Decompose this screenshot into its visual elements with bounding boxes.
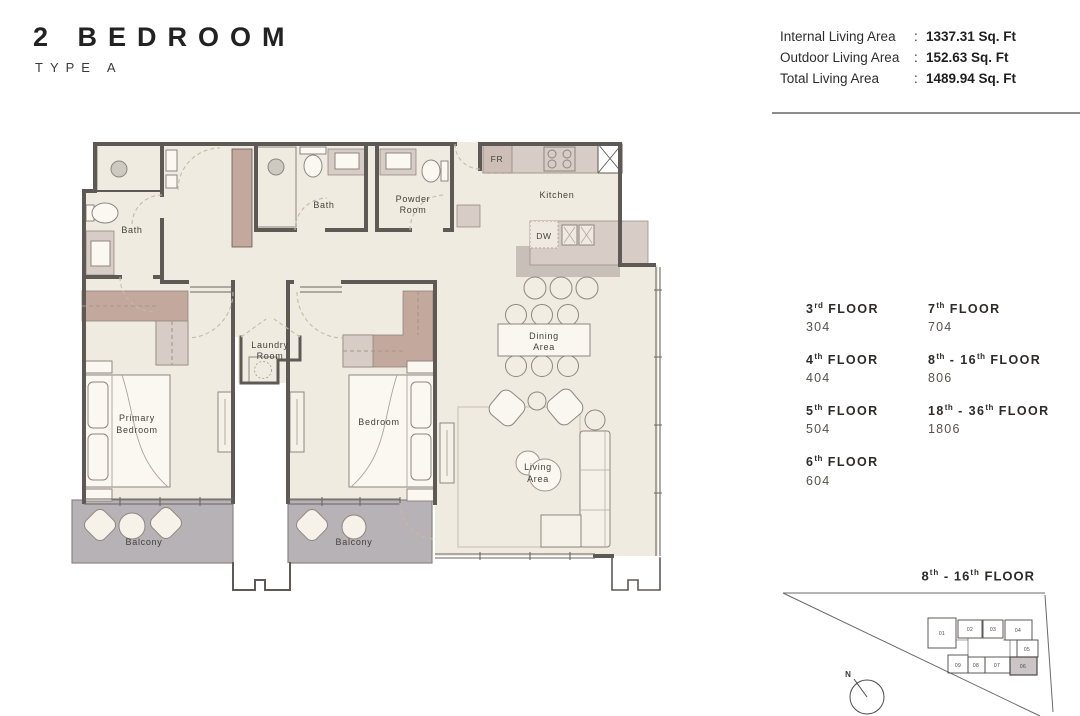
- unit-label-02: 02: [967, 627, 973, 633]
- unit-label-04: 04: [1015, 628, 1021, 634]
- label-kitchen: Kitchen: [540, 190, 575, 200]
- label-fr: FR: [491, 154, 504, 164]
- sofa-back: [580, 431, 610, 547]
- stat-separator: :: [914, 47, 926, 68]
- stat-separator: :: [914, 26, 926, 47]
- stat-label: Outdoor Living Area: [780, 47, 914, 68]
- sink-ensuite: [91, 241, 110, 266]
- page-title: 2 BEDROOM: [33, 22, 296, 53]
- pillow: [411, 434, 431, 480]
- floor-unit: 1806: [928, 422, 1050, 436]
- label-living-1: Living: [524, 462, 552, 472]
- corner-column: [612, 558, 660, 590]
- stats-divider: [772, 112, 1080, 114]
- floor-item: 6th FLOOR 604: [806, 454, 928, 487]
- floor-item: 18th - 36th FLOOR 1806: [928, 403, 1050, 436]
- label-bedroom: Bedroom: [358, 417, 399, 427]
- stat-value: 152.63 Sq. Ft: [926, 47, 1080, 68]
- label-balcony-left: Balcony: [126, 537, 163, 547]
- sink-main: [335, 153, 359, 169]
- stat-row-total: Total Living Area : 1489.94 Sq. Ft: [780, 68, 1080, 89]
- floor-unit: 504: [806, 422, 928, 436]
- unit-label-07: 07: [994, 663, 1000, 669]
- unit-label-05: 05: [1024, 647, 1030, 653]
- nightstand: [84, 361, 112, 373]
- floor-item: 4th FLOOR 404: [806, 352, 928, 385]
- entry-pier: [457, 205, 480, 227]
- stat-separator: :: [914, 68, 926, 89]
- compass: N: [845, 670, 884, 714]
- bar-stool: [524, 277, 546, 299]
- floor-unit: 604: [806, 474, 928, 488]
- toilet-powder: [422, 160, 440, 182]
- label-powder-2: Room: [400, 205, 427, 215]
- label-balcony-right: Balcony: [336, 537, 373, 547]
- compass-label: N: [845, 670, 851, 679]
- floor-unit: 304: [806, 320, 928, 334]
- pillow: [88, 382, 108, 428]
- label-laundry-2: Room: [257, 351, 284, 361]
- floors-list: 3rd FLOOR 304 7th FLOOR 704 4th FLOOR 40…: [806, 301, 1050, 488]
- label-laundry-1: Laundry: [251, 340, 288, 350]
- stat-value: 1489.94 Sq. Ft: [926, 68, 1080, 89]
- toilet-main: [304, 155, 322, 177]
- shower-ensuite: [97, 145, 161, 191]
- area-stats: Internal Living Area : 1337.31 Sq. Ft Ou…: [780, 26, 1080, 89]
- stat-row-internal: Internal Living Area : 1337.31 Sq. Ft: [780, 26, 1080, 47]
- foyer-wall-panel: [232, 149, 252, 247]
- unit-label-01: 01: [939, 631, 945, 637]
- side-table: [528, 392, 546, 410]
- sink-powder: [386, 153, 411, 169]
- stat-value: 1337.31 Sq. Ft: [926, 26, 1080, 47]
- floor-plan-drawing: Bath Bath Powder Room Kitchen FR DW Dini…: [60, 125, 690, 625]
- balcony-table: [342, 515, 366, 539]
- shower-drain: [111, 161, 127, 177]
- label-bath-main: Bath: [313, 200, 334, 210]
- balcony-table: [119, 513, 145, 539]
- pillow: [88, 434, 108, 480]
- floor-item: 7th FLOOR 704: [928, 301, 1050, 334]
- label-bath-ensuite: Bath: [121, 225, 142, 235]
- nightstand: [407, 489, 435, 501]
- label-dw: DW: [536, 231, 552, 241]
- keyplan-floor-label: 8th - 16th FLOOR: [835, 568, 1035, 583]
- dining-chair: [506, 356, 527, 377]
- unit-label-09: 09: [955, 663, 961, 669]
- floor-item: 5th FLOOR 504: [806, 403, 928, 436]
- nightstand: [407, 361, 435, 373]
- keyplan-drawing: 01 02 03 04 05 06 07 08 09 N: [770, 590, 1080, 716]
- bar-stool: [576, 277, 598, 299]
- floor-unit: 806: [928, 371, 1050, 385]
- sofa-seat: [541, 515, 581, 547]
- label-dining-2: Area: [533, 342, 555, 352]
- label-living-2: Area: [527, 474, 549, 484]
- floorplan-page: 2 BEDROOM TYPE A Internal Living Area : …: [0, 0, 1080, 716]
- unit-label-03: 03: [990, 627, 996, 633]
- toilet-ensuite: [92, 203, 118, 223]
- label-powder-1: Powder: [396, 194, 431, 204]
- side-table: [585, 410, 605, 430]
- stat-row-outdoor: Outdoor Living Area : 152.63 Sq. Ft: [780, 47, 1080, 68]
- label-primary-bedroom-1: Primary: [119, 413, 155, 423]
- dining-chair: [532, 356, 553, 377]
- bar-stool: [550, 277, 572, 299]
- floor-unit: 404: [806, 371, 928, 385]
- pillow: [411, 382, 431, 428]
- floor-unit: 704: [928, 320, 1050, 334]
- site-boundary: [783, 593, 1053, 716]
- center-pier: [233, 563, 290, 590]
- dining-chair: [558, 356, 579, 377]
- unit-label-08: 08: [973, 663, 979, 669]
- floor-item: 3rd FLOOR 304: [806, 301, 928, 334]
- dining-chair: [506, 305, 527, 326]
- page-subtitle: TYPE A: [35, 60, 123, 75]
- label-primary-bedroom-2: Bedroom: [116, 425, 157, 435]
- dining-chair: [558, 305, 579, 326]
- dining-chair: [532, 305, 553, 326]
- stat-label: Internal Living Area: [780, 26, 914, 47]
- floor-item: 8th - 16th FLOOR 806: [928, 352, 1050, 385]
- stat-label: Total Living Area: [780, 68, 914, 89]
- unit-label-06: 06: [1020, 664, 1026, 670]
- label-dining-1: Dining: [529, 331, 559, 341]
